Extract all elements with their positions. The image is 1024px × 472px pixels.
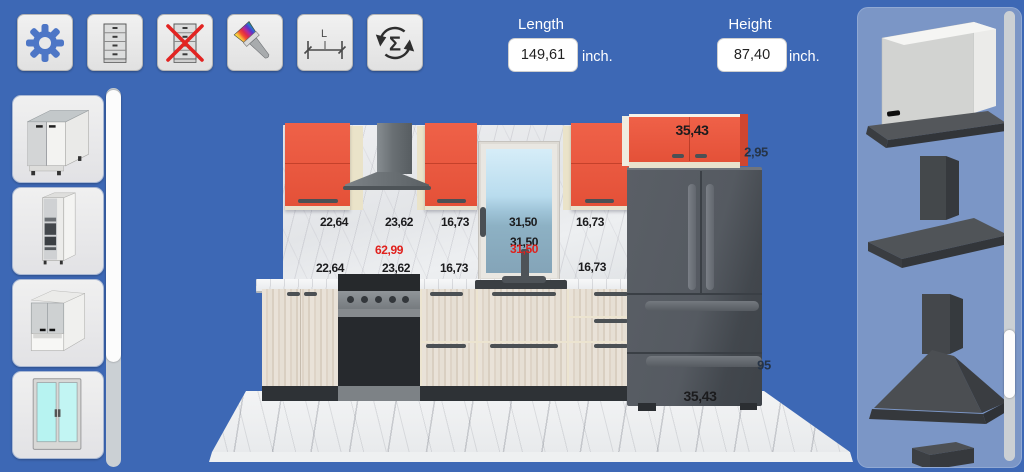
handle bbox=[426, 344, 466, 348]
wall-cabinet-1[interactable] bbox=[285, 123, 350, 210]
hood-item-next-partial[interactable] bbox=[904, 436, 984, 468]
delete-cabinet-button[interactable] bbox=[157, 14, 213, 71]
svg-text:Σ: Σ bbox=[389, 33, 401, 55]
handle bbox=[492, 292, 556, 296]
pyramid-hood-icon bbox=[862, 292, 1012, 434]
fridge-foot bbox=[740, 403, 757, 410]
sidebar-item-wall-cabinet[interactable] bbox=[12, 279, 104, 367]
handle bbox=[490, 344, 558, 348]
cooker-hood-rim bbox=[343, 186, 431, 190]
handle bbox=[594, 319, 628, 323]
scene-window[interactable] bbox=[478, 141, 560, 281]
stove-knob bbox=[389, 296, 396, 303]
length-label: Length bbox=[506, 16, 576, 33]
wall-cabinet-side bbox=[417, 126, 425, 210]
handle bbox=[594, 292, 628, 296]
faucet-handle-bar bbox=[502, 276, 546, 283]
sink-cabinet[interactable] bbox=[476, 289, 569, 386]
base-cabinet-icon bbox=[14, 97, 102, 181]
handle bbox=[304, 292, 317, 296]
delete-cabinet-icon bbox=[163, 21, 207, 65]
wall-cabinet-icon bbox=[14, 281, 102, 365]
cabinet-front bbox=[629, 114, 740, 168]
tall-cabinet-icon bbox=[14, 189, 102, 273]
handle bbox=[672, 154, 684, 158]
length-input[interactable] bbox=[508, 38, 578, 72]
wall-cabinet-2[interactable] bbox=[425, 123, 477, 210]
handle bbox=[585, 199, 614, 203]
furniture-sidebar bbox=[12, 88, 134, 472]
hood-scrollbar-thumb[interactable] bbox=[1004, 330, 1015, 398]
hood-item-pyramid[interactable] bbox=[862, 292, 1012, 437]
stove-knob bbox=[375, 296, 382, 303]
drawer-split bbox=[422, 341, 478, 343]
handle bbox=[594, 344, 628, 348]
fridge-drawer-handle bbox=[645, 301, 759, 311]
measure-button[interactable]: L bbox=[297, 14, 353, 71]
measure-length-icon: L bbox=[303, 21, 347, 65]
handle bbox=[437, 199, 466, 203]
gear-icon bbox=[23, 21, 67, 65]
drawer-split bbox=[478, 341, 569, 343]
fridge[interactable] bbox=[627, 167, 762, 411]
stove-knob bbox=[361, 296, 368, 303]
length-unit: inch. bbox=[582, 49, 613, 65]
oven-door bbox=[338, 317, 420, 386]
fridge-drawer-handle bbox=[646, 356, 762, 367]
handle bbox=[430, 292, 463, 296]
wall-cabinet-side bbox=[563, 126, 571, 210]
sidebar-item-base-cabinet[interactable] bbox=[12, 95, 104, 183]
cooker-hood-chimney[interactable] bbox=[377, 123, 412, 174]
base-cabinet-drawers-left[interactable] bbox=[420, 289, 478, 386]
svg-text:L: L bbox=[321, 28, 327, 40]
floor-platform-edge bbox=[205, 450, 855, 464]
toe-kick bbox=[262, 386, 637, 401]
control-panel bbox=[338, 291, 420, 309]
fridge-door-handle bbox=[688, 184, 696, 290]
add-cabinet-button[interactable] bbox=[87, 14, 143, 71]
fridge-door-handle bbox=[706, 184, 714, 290]
flat-canopy-hood-icon bbox=[862, 154, 1012, 287]
hood-panel bbox=[857, 7, 1022, 468]
fridge-door-split bbox=[700, 171, 702, 293]
hood-item-flat-canopy[interactable] bbox=[862, 154, 1012, 290]
cooktop bbox=[338, 274, 420, 291]
built-in-hood-icon bbox=[862, 14, 1012, 156]
sidebar-scrollbar-thumb[interactable] bbox=[106, 90, 121, 362]
window-handle bbox=[480, 207, 486, 237]
kitchen-planner-app: { "toolbar": { "buttons": [ {"id": "sett… bbox=[0, 0, 1024, 472]
door-split bbox=[300, 289, 301, 386]
box-hood-icon bbox=[904, 436, 984, 468]
fridge-line bbox=[627, 352, 762, 354]
over-fridge-cabinet[interactable] bbox=[622, 112, 748, 168]
fridge-line bbox=[627, 293, 762, 295]
stove-drawer bbox=[338, 386, 420, 401]
cabinet-right-face bbox=[740, 114, 748, 166]
paint-button[interactable] bbox=[227, 14, 283, 71]
fridge-foot bbox=[638, 403, 656, 411]
handle bbox=[287, 292, 300, 296]
sidebar-item-window[interactable] bbox=[12, 371, 104, 459]
sigma-refresh-icon: Σ bbox=[373, 21, 417, 65]
calculate-button[interactable]: Σ bbox=[367, 14, 423, 71]
settings-button[interactable] bbox=[17, 14, 73, 71]
stove-knob bbox=[402, 296, 409, 303]
height-label: Height bbox=[715, 16, 785, 33]
window-icon bbox=[14, 373, 102, 457]
wall-cabinet-side bbox=[350, 126, 363, 210]
cabinet-side-face bbox=[622, 116, 629, 166]
paint-brush-icon bbox=[233, 21, 277, 65]
handle bbox=[695, 154, 707, 158]
height-input[interactable] bbox=[717, 38, 787, 72]
height-unit: inch. bbox=[789, 49, 820, 65]
base-cabinet-doors[interactable] bbox=[262, 289, 338, 386]
sidebar-item-tall-cabinet[interactable] bbox=[12, 187, 104, 275]
door-split bbox=[689, 117, 690, 161]
hood-item-built-in[interactable] bbox=[862, 14, 1012, 159]
cabinet-icon bbox=[93, 21, 137, 65]
stove[interactable] bbox=[338, 274, 420, 401]
handle bbox=[298, 199, 338, 203]
stove-knob bbox=[347, 296, 354, 303]
window-glass bbox=[486, 149, 552, 273]
